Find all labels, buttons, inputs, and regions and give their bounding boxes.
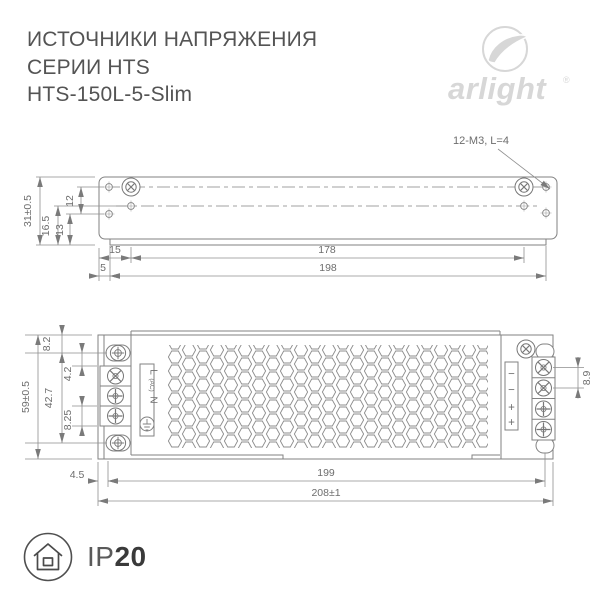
dim-208: 208±1: [311, 487, 340, 499]
case-screw-icon: [122, 178, 140, 196]
dc-label-minus: −: [508, 385, 515, 397]
dim-8-9: 8.9: [581, 371, 593, 386]
dim-15: 15: [109, 244, 121, 256]
dim-height-bottom: 59±0.5: [20, 381, 32, 413]
terminal-screw-icon: [108, 368, 124, 384]
dim-8-2: 8.2: [41, 337, 53, 352]
terminal-screw-icon: [536, 360, 552, 376]
ear-screw-icon: [110, 435, 125, 450]
dim-5: 5: [100, 262, 106, 274]
dc-label-plus: +: [508, 402, 515, 414]
terminal-screw-icon: [108, 388, 124, 404]
dim-12: 12: [64, 195, 76, 207]
ac-label-ac: (AC): [148, 378, 155, 391]
dim-4-5: 4.5: [70, 469, 85, 481]
case-screw-icon: [515, 178, 533, 196]
top-view: [99, 177, 557, 245]
dc-label-plus: +: [508, 417, 515, 429]
terminal-screw-icon: [536, 422, 552, 438]
ip-value: 20: [114, 541, 146, 572]
ip-rating-badge: IP20: [22, 531, 147, 583]
dim-199: 199: [317, 467, 335, 479]
ac-label-neutral: N: [148, 396, 159, 403]
datasheet-page: ИСТОЧНИКИ НАПРЯЖЕНИЯ СЕРИИ HTS HTS-150L-…: [0, 0, 600, 600]
ip-prefix: IP: [87, 541, 114, 572]
ear-screw-icon: [110, 345, 125, 360]
house-icon: [22, 531, 74, 583]
dim-178: 178: [318, 244, 336, 256]
dim-8-25: 8.25: [62, 410, 74, 431]
case-screw-icon: [517, 340, 535, 358]
ip-rating-text: IP20: [87, 541, 147, 573]
dim-4-2: 4.2: [62, 367, 74, 382]
dc-label-minus: −: [508, 369, 515, 381]
ventilation-grid: [168, 345, 488, 448]
enclosure-side-outline: [99, 177, 557, 239]
dim-198: 198: [319, 262, 337, 274]
dim-42-7: 42.7: [43, 388, 55, 409]
bottom-view: [98, 331, 555, 459]
terminal-screw-icon: [536, 401, 552, 417]
dim-height-top: 31±0.5: [22, 195, 34, 227]
dim-13: 13: [54, 224, 66, 236]
ac-label-line: L: [148, 369, 159, 375]
terminal-screw-icon: [108, 408, 124, 424]
cover-top-edge: [131, 331, 500, 335]
terminal-screw-icon: [536, 380, 552, 396]
technical-drawing: 31±0.5 16.5 13 12 15 178 5 198 12-M3, L=…: [0, 0, 600, 600]
thread-annotation: 12-M3, L=4: [453, 135, 509, 147]
dim-16-5: 16.5: [40, 216, 52, 237]
